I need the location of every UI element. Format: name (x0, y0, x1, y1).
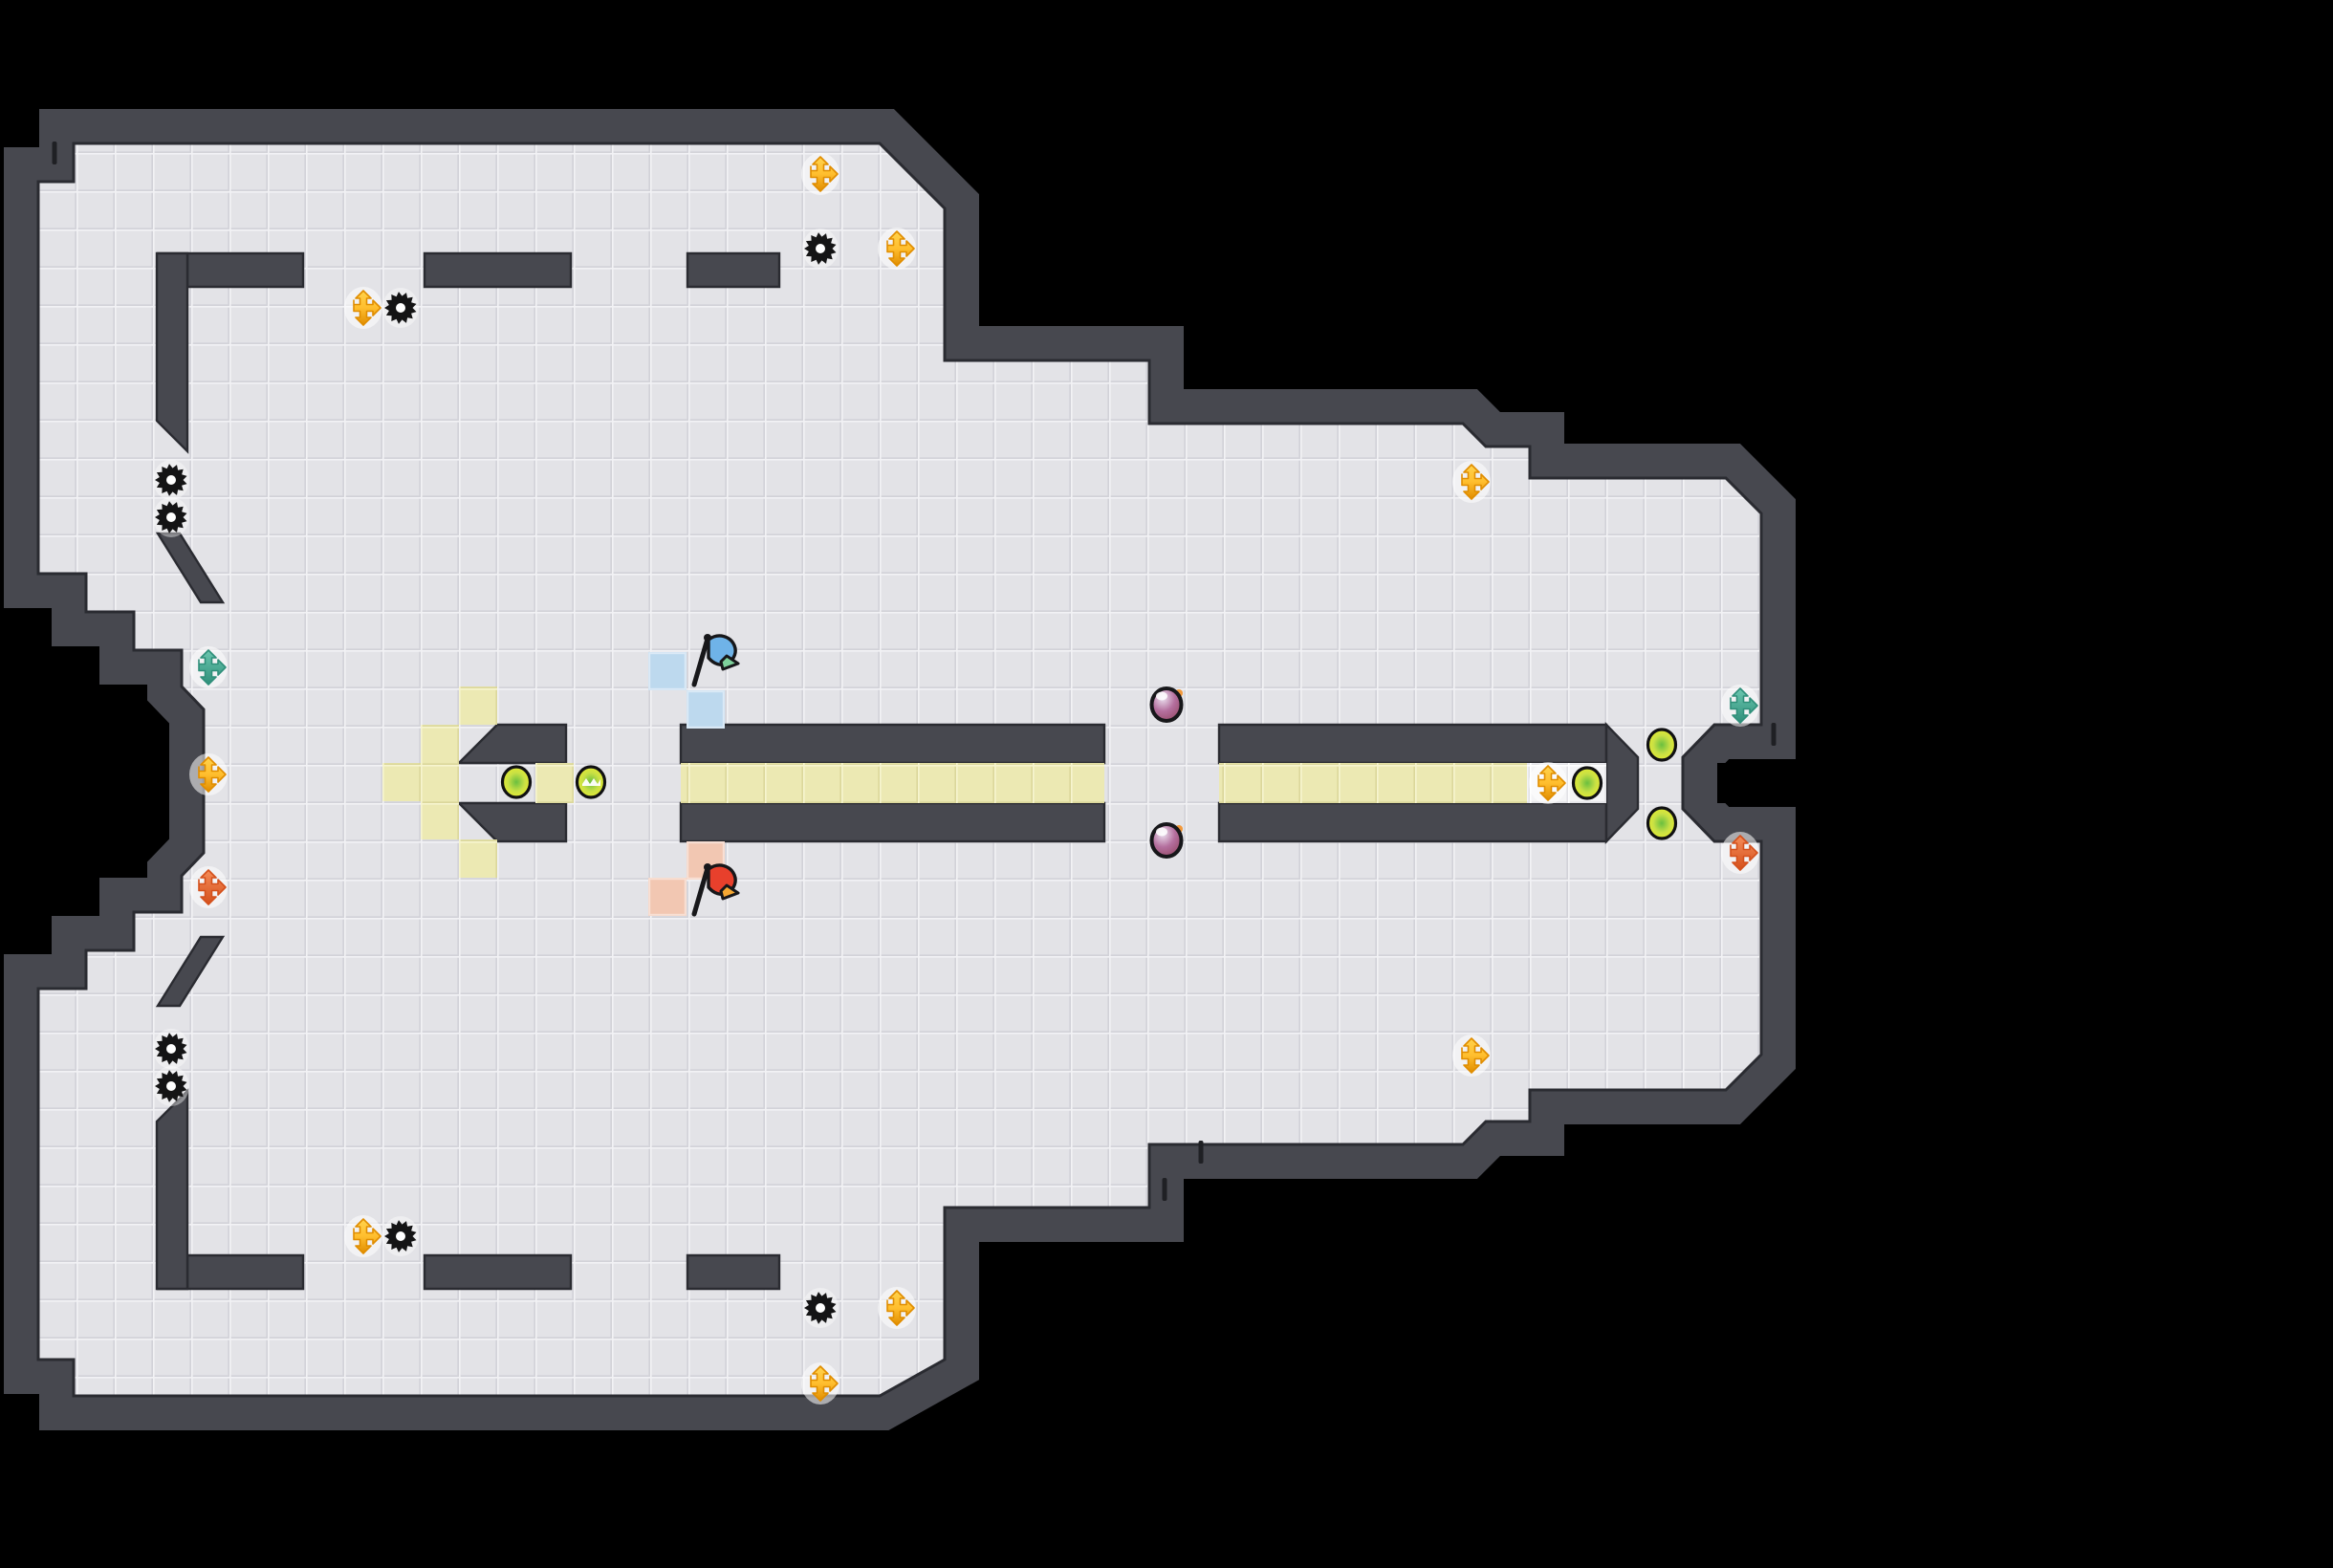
blue-spawn-tile (687, 690, 725, 729)
wall-lower-seg-a (425, 1255, 571, 1289)
gold-cross (1452, 461, 1491, 503)
bomb-shine (1156, 692, 1167, 701)
drone-body (1648, 730, 1676, 760)
drone (1574, 768, 1602, 798)
door-dash-marker (1772, 723, 1777, 746)
wall-bar-top-right (1219, 725, 1606, 763)
wall-bar-bottom-right (1219, 803, 1606, 841)
wall-upper-seg-b (687, 253, 779, 287)
drone-body (578, 767, 605, 797)
mine-gear (382, 1216, 419, 1256)
wall-lower-L-column (157, 1091, 187, 1289)
gold-cross (801, 1362, 839, 1405)
pink-spawn-tile (648, 878, 687, 916)
gold-cross (878, 228, 916, 270)
chevron-tile (421, 725, 459, 763)
wall-upper-L-column (157, 253, 187, 451)
drone (1648, 808, 1676, 838)
drone (1648, 730, 1676, 760)
gold-cross (344, 287, 382, 329)
gold-cross (189, 753, 228, 795)
mine-gear (802, 229, 839, 269)
yellow-floor-zone (1219, 763, 1527, 803)
teal-cross (1721, 685, 1759, 727)
gold-cross (344, 1215, 382, 1257)
gold-cross (878, 1287, 916, 1329)
drone-body (1648, 808, 1676, 838)
yellow-floor-zone (681, 763, 1104, 803)
drone-body (1574, 768, 1602, 798)
gear-hub (396, 1231, 405, 1241)
gear-hub (396, 303, 405, 313)
gear-hub (816, 244, 825, 253)
gear-hub (166, 512, 176, 522)
bomb (1152, 824, 1184, 857)
gear-hub (166, 1044, 176, 1054)
chevron-tile (459, 839, 497, 878)
gear-hub (166, 1081, 176, 1091)
orange-cross (1721, 832, 1759, 874)
chevron-tile (382, 763, 421, 801)
gold-cross (1452, 1034, 1491, 1077)
gear-hub (816, 1303, 825, 1313)
gold-cross (801, 153, 839, 195)
mine-gear (802, 1288, 839, 1328)
gear-hub (166, 475, 176, 485)
right-wall-notch (1717, 763, 1798, 803)
bomb-body (1152, 824, 1182, 857)
bomb (1152, 688, 1184, 721)
door-dash-marker (53, 142, 57, 164)
wall-bar-bottom-mid (681, 803, 1104, 841)
mine-gear (153, 1029, 189, 1069)
teal-cross (189, 646, 228, 688)
mine-gear (382, 288, 419, 328)
wall-lower-seg-b (687, 1255, 779, 1289)
mine-gear (153, 460, 189, 500)
gold-cross (1529, 762, 1567, 804)
level-map-canvas[interactable] (0, 0, 2333, 1568)
bomb-body (1152, 688, 1182, 721)
mine-gear (153, 1066, 189, 1106)
door-dash-marker (1199, 1141, 1204, 1164)
door-dash-marker (1163, 1178, 1167, 1201)
drone-body (503, 767, 531, 797)
orange-cross (189, 866, 228, 908)
blue-spawn-tile (648, 652, 687, 690)
chevron-tile (421, 763, 459, 801)
drone (503, 767, 531, 797)
game-level-viewport[interactable] (0, 0, 2333, 1568)
wall-upper-seg-a (425, 253, 571, 287)
chevron-tile (459, 686, 497, 725)
drone-toothed (578, 767, 605, 797)
chevron-tile (421, 801, 459, 839)
mine-gear (153, 497, 189, 537)
yellow-floor-zone (535, 763, 574, 803)
wall-bar-top-mid (681, 725, 1104, 763)
bomb-shine (1156, 828, 1167, 837)
